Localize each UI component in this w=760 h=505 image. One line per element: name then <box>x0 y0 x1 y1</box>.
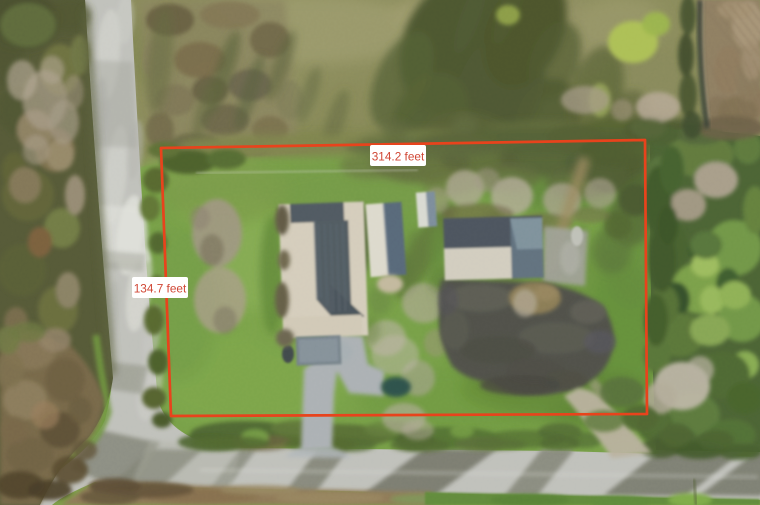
svg-text:134.7 feet: 134.7 feet <box>134 282 187 296</box>
svg-text:314.2 feet: 314.2 feet <box>372 150 425 164</box>
